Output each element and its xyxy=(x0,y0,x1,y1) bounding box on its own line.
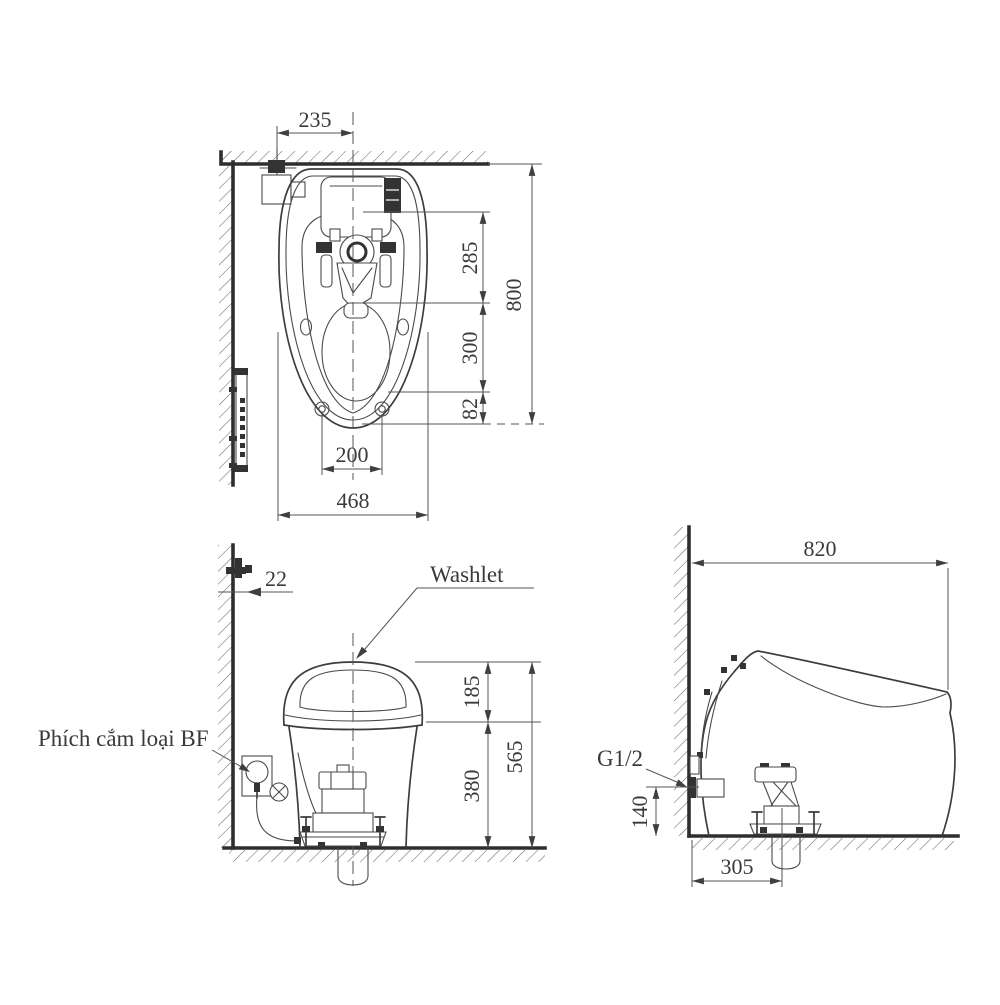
toilet-installation-drawing: 235 285 300 82 800 200 468 xyxy=(0,0,1000,1000)
washlet-label-text: Washlet xyxy=(430,562,504,587)
dim-rim-height: 380 xyxy=(459,722,488,848)
dim-text-22: 22 xyxy=(265,566,287,591)
top-view-flush-unit xyxy=(316,235,396,318)
dim-text-82: 82 xyxy=(457,398,482,420)
dim-text-820: 820 xyxy=(804,536,837,561)
wall-hatching xyxy=(218,545,233,848)
dim-text-140: 140 xyxy=(627,796,652,829)
front-view-walls xyxy=(218,545,545,862)
dim-text-185: 185 xyxy=(459,676,484,709)
dim-lid-height: 185 xyxy=(459,662,488,722)
floor-hatching xyxy=(692,837,954,850)
dim-text-285: 285 xyxy=(457,242,482,275)
side-hole-right xyxy=(398,319,409,335)
drawing-page: 235 285 300 82 800 200 468 xyxy=(0,0,1000,1000)
dim-overall-depth-plan: 800 xyxy=(501,164,532,424)
wall-hatching xyxy=(674,527,689,836)
dim-tank-depth: 285 xyxy=(457,212,483,303)
inlet-label: G1/2 xyxy=(597,746,687,787)
dim-text-800: 800 xyxy=(501,279,526,312)
body-left xyxy=(289,727,300,847)
front-view-drain-assembly xyxy=(300,765,386,885)
floor-hatching xyxy=(229,849,545,862)
dim-overall-height: 565 xyxy=(502,662,532,848)
side-view-walls xyxy=(674,527,958,850)
inlet-label-text: G1/2 xyxy=(597,746,643,771)
dim-text-305: 305 xyxy=(721,854,754,879)
dim-text-300: 300 xyxy=(457,332,482,365)
dim-text-200: 200 xyxy=(336,442,369,467)
side-hole-left xyxy=(301,319,312,335)
front-view-power-socket xyxy=(242,756,301,844)
side-view-drain-assembly xyxy=(750,763,821,869)
dim-text-468: 468 xyxy=(337,488,370,513)
dim-bowl-depth: 300 xyxy=(457,303,483,392)
toilet-profile xyxy=(701,651,955,836)
dim-overall-depth-side: 820 xyxy=(692,536,948,690)
lid-seam xyxy=(761,656,946,707)
dim-front-offset: 82 xyxy=(457,392,483,424)
side-view-toilet xyxy=(690,651,955,836)
wall-hatching-left xyxy=(219,151,233,485)
dim-text-380: 380 xyxy=(459,770,484,803)
washlet-label: Washlet xyxy=(356,562,534,659)
power-cord xyxy=(257,796,297,841)
dim-supply-offset: 235 xyxy=(277,107,353,150)
plug-face xyxy=(246,761,268,783)
side-control-panel xyxy=(384,178,401,213)
dim-text-565: 565 xyxy=(502,741,527,774)
plug-label-text: Phích cắm loại BF xyxy=(38,726,209,751)
side-view: 820 G1/2 140 305 xyxy=(597,527,958,887)
wall-hatching-top xyxy=(221,151,488,164)
washlet-leader-line xyxy=(359,588,417,656)
front-view: 22 xyxy=(38,545,545,886)
inlet-valve xyxy=(697,779,724,797)
top-view: 235 285 300 82 800 200 468 xyxy=(219,107,544,521)
dim-text-235: 235 xyxy=(299,107,332,132)
body-right xyxy=(406,727,417,847)
